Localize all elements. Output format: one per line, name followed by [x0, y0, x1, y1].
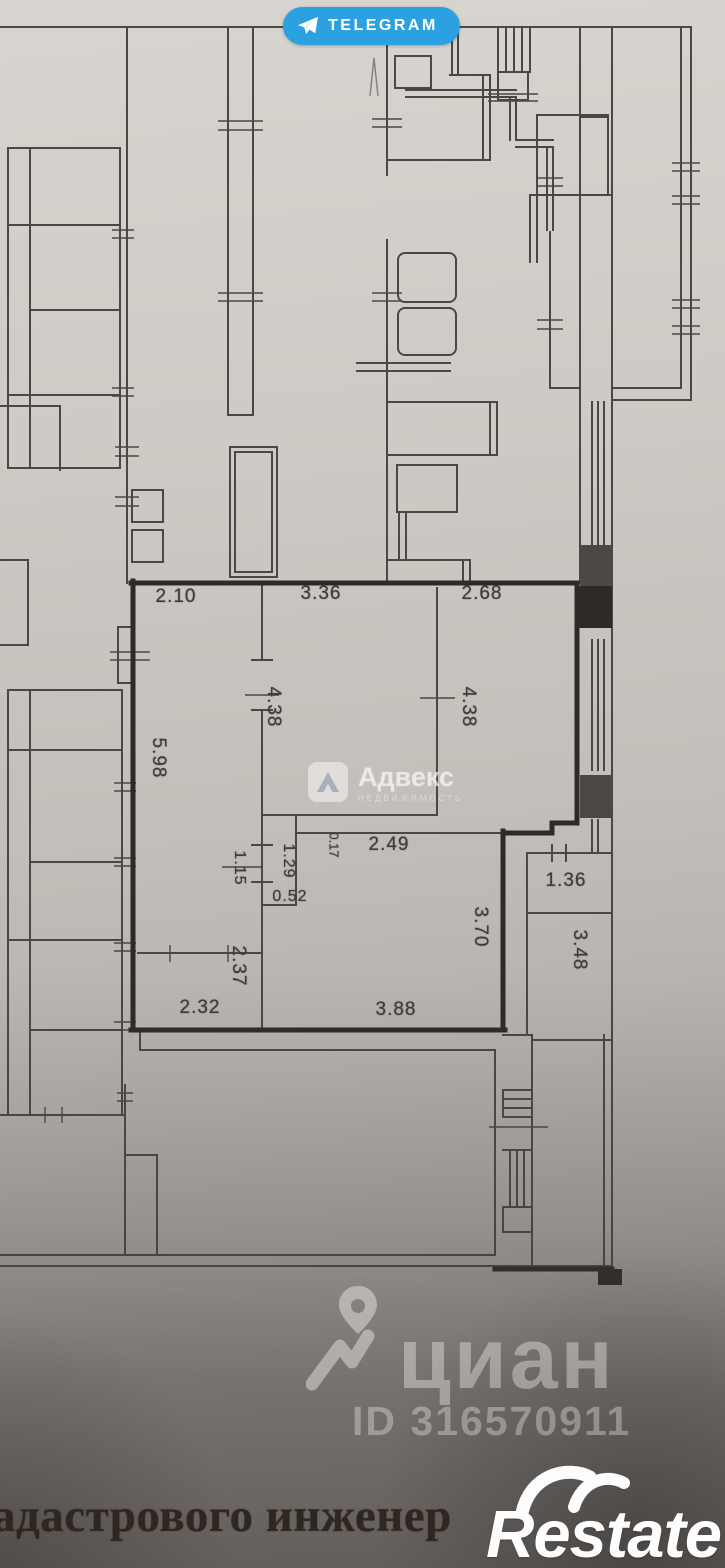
- dim-room-mid-depth: 4.38: [262, 687, 284, 728]
- walls-thick: [131, 581, 612, 1269]
- dim-small-room-width: 2.32: [180, 997, 221, 1019]
- restate-logo-wordmark: Restate: [486, 1501, 721, 1568]
- document-caption: адастрового инженер: [0, 1489, 452, 1543]
- cian-watermark-id: ID 316570911: [352, 1398, 631, 1445]
- cian-watermark-name: циан: [398, 1316, 616, 1402]
- dim-living-depth: 3.70: [469, 907, 491, 948]
- wall-piers: [577, 545, 622, 1285]
- cian-pin-icon: [306, 1284, 406, 1394]
- pencil-mark: [370, 58, 378, 96]
- restate-logo: Restate: [484, 1455, 725, 1568]
- advex-watermark: Адвекс НЕДВИЖИМОСТЬ: [308, 762, 463, 803]
- advex-watermark-name: Адвекс: [358, 764, 463, 791]
- floor-plan-photo: 2.10 3.36 2.68 4.38 4.38 5.98 1.15 1.29 …: [0, 0, 725, 1568]
- dim-duct-depth: 1.29: [279, 843, 297, 878]
- dim-hall-left-depth: 5.98: [147, 738, 169, 779]
- dim-loggia-depth: 3.48: [568, 930, 590, 971]
- dim-wall-offset: 0.17: [327, 832, 342, 857]
- advex-logo-icon: [308, 762, 348, 802]
- dim-living-width: 3.88: [376, 999, 417, 1021]
- walls-thin: [0, 27, 691, 1270]
- dim-small-room-depth: 2.37: [227, 946, 249, 987]
- dim-corridor-width: 2.49: [369, 834, 410, 856]
- telegram-watermark-label: TELEGRAM: [328, 17, 438, 35]
- advex-watermark-subtitle: НЕДВИЖИМОСТЬ: [358, 794, 463, 803]
- dim-hall-top-width: 2.10: [156, 586, 197, 608]
- dim-room-right-depth: 4.38: [457, 687, 479, 728]
- dim-passage-width: 1.15: [230, 850, 248, 885]
- dim-room-right-top-width: 2.68: [462, 583, 503, 605]
- dim-niche-width: 1.36: [546, 870, 587, 892]
- dim-duct-width: 0.52: [272, 888, 307, 906]
- telegram-plane-icon: [297, 16, 319, 36]
- dim-room-mid-top-width: 3.36: [301, 583, 342, 605]
- telegram-watermark: TELEGRAM: [283, 7, 460, 45]
